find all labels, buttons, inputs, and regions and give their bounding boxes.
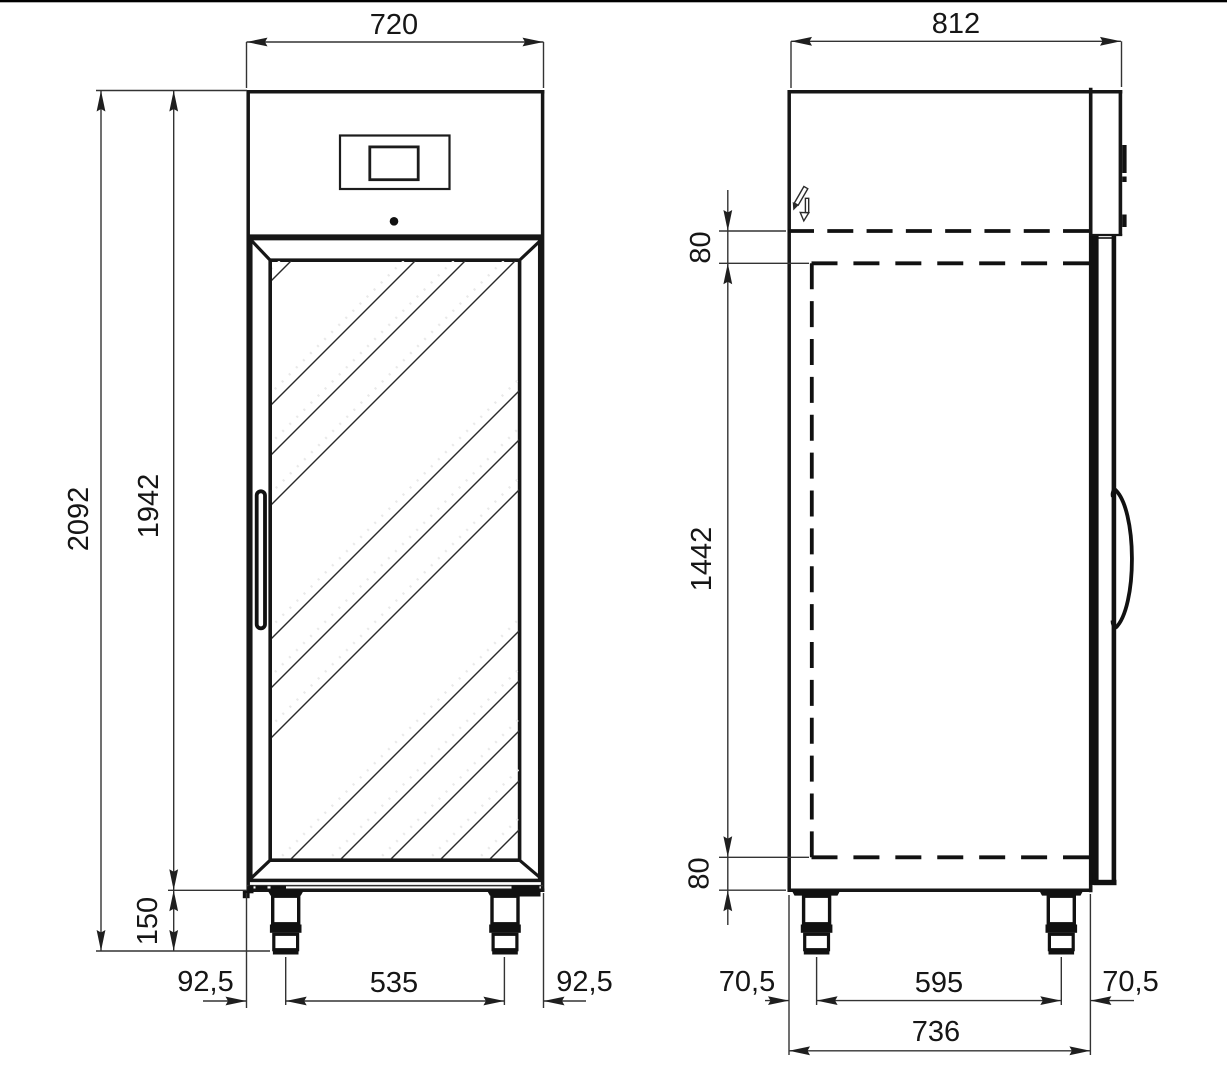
svg-text:92,5: 92,5 — [177, 966, 233, 998]
svg-text:80: 80 — [684, 857, 716, 889]
svg-text:720: 720 — [370, 9, 418, 41]
svg-text:80: 80 — [685, 231, 717, 263]
svg-text:736: 736 — [912, 1016, 960, 1048]
svg-text:595: 595 — [915, 967, 963, 999]
svg-text:70,5: 70,5 — [1102, 966, 1158, 998]
svg-text:150: 150 — [132, 897, 164, 945]
svg-text:70,5: 70,5 — [719, 966, 775, 998]
svg-text:535: 535 — [370, 967, 418, 999]
svg-text:1442: 1442 — [686, 527, 718, 592]
svg-text:2092: 2092 — [63, 487, 95, 552]
svg-text:1942: 1942 — [133, 474, 165, 539]
svg-text:812: 812 — [932, 8, 980, 40]
svg-text:92,5: 92,5 — [556, 966, 612, 998]
